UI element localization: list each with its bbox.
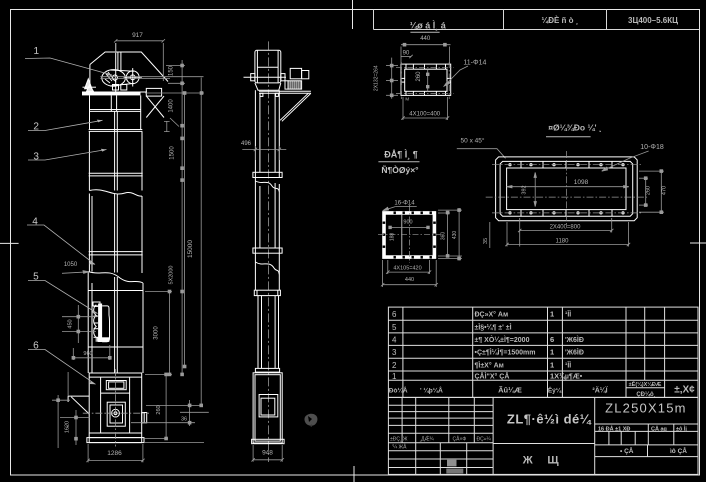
svg-text:ÇÅÌ"X° ÇÅ: ÇÅÌ"X° ÇÅ — [475, 372, 510, 381]
svg-text:¼ø á Ì¸ á: ¼ø á Ì¸ á — [410, 21, 447, 31]
svg-text:450: 450 — [68, 319, 74, 328]
svg-text:1050: 1050 — [64, 262, 78, 268]
svg-text:ìô ÇÅ: ìô ÇÅ — [669, 446, 687, 455]
svg-text:'Ж6ÌÐ: 'Ж6ÌÐ — [565, 335, 584, 344]
svg-text:1: 1 — [550, 310, 554, 319]
svg-text:496: 496 — [241, 141, 252, 147]
svg-text:' ¼þ¼Å: ' ¼þ¼Å — [420, 386, 443, 395]
svg-text:1500: 1500 — [170, 146, 176, 160]
svg-text:15000: 15000 — [187, 240, 194, 258]
svg-text:4: 4 — [392, 336, 397, 345]
svg-text:±,X¢: ±,X¢ — [674, 385, 695, 396]
svg-text:¼ÐÈ ñ ò ¸: ¼ÐÈ ñ ò ¸ — [542, 16, 579, 25]
svg-text:Ðò¼Å: Ðò¼Å — [389, 386, 408, 395]
svg-text:3Ц400–5.6КЦ: 3Ц400–5.6КЦ — [628, 16, 678, 25]
svg-text:960: 960 — [83, 351, 92, 357]
svg-text:4X105=420: 4X105=420 — [393, 265, 421, 271]
svg-text:Êý¼: Êý¼ — [548, 386, 562, 395]
svg-text:900: 900 — [403, 220, 412, 226]
svg-text:1400: 1400 — [169, 99, 175, 113]
svg-text:3: 3 — [33, 151, 39, 162]
svg-text:3000: 3000 — [154, 326, 160, 340]
svg-text:1620: 1620 — [65, 421, 71, 433]
svg-text:M: M — [405, 97, 409, 102]
svg-text:5: 5 — [392, 323, 397, 332]
svg-text:10-Φ18: 10-Φ18 — [640, 144, 664, 151]
svg-text:150: 150 — [169, 65, 175, 76]
svg-text:¸ДǼ¾: ¸ДǼ¾ — [420, 436, 435, 443]
svg-text:260: 260 — [646, 186, 652, 195]
svg-text:²Ä¼Ï: ²Ä¼Ï — [592, 387, 608, 395]
svg-text:948: 948 — [262, 450, 273, 457]
svg-text:ÐÇ»¼: ÐÇ»¼ — [477, 437, 492, 443]
svg-text:5: 5 — [33, 271, 39, 282]
svg-text:•Ç±¶Ì¼Ì¶=1500mm: •Ç±¶Ì¼Ì¶=1500mm — [475, 348, 536, 357]
svg-text:6: 6 — [33, 340, 39, 351]
svg-text:ÐÇ»X° Ам: ÐÇ»X° Ам — [475, 311, 509, 319]
svg-text:• ÇÅ: • ÇÅ — [620, 446, 634, 455]
svg-text:36: 36 — [181, 417, 187, 423]
svg-text:16 ÐÅ ±1 XÐ: 16 ÐÅ ±1 XÐ — [598, 426, 630, 433]
svg-text:917: 917 — [132, 32, 143, 39]
svg-text:¶Ì±X° Ам: ¶Ì±X° Ам — [475, 361, 504, 370]
svg-text:6: 6 — [392, 310, 397, 319]
svg-text:Ж: Ж — [522, 455, 533, 467]
svg-text:'Ж6ÌÐ: 'Ж6ÌÐ — [565, 348, 584, 357]
svg-text:90: 90 — [403, 51, 410, 57]
svg-text:470: 470 — [662, 186, 668, 195]
svg-text:5X2000: 5X2000 — [168, 266, 174, 285]
svg-text:Щ: Щ — [547, 455, 559, 467]
svg-text:360: 360 — [441, 232, 447, 241]
svg-text:4: 4 — [32, 216, 38, 227]
svg-text:Ñ¶ÒØý×°: Ñ¶ÒØý×° — [381, 164, 419, 175]
svg-text:1: 1 — [33, 46, 39, 57]
svg-text:1180: 1180 — [556, 238, 570, 244]
svg-text:260: 260 — [156, 405, 162, 414]
svg-text:1: 1 — [550, 348, 554, 357]
svg-text:ÇÅ×Ф: ÇÅ×Ф — [453, 436, 467, 443]
svg-text:188: 188 — [390, 233, 396, 242]
svg-text:6: 6 — [550, 335, 554, 344]
svg-text:2X132=264: 2X132=264 — [374, 65, 380, 91]
svg-text:±Ì§•¼¶ ±' ±Ì: ±Ì§•¼¶ ±' ±Ì — [475, 323, 512, 332]
svg-text:1286: 1286 — [107, 450, 122, 457]
svg-text:ÐÅ¶ Ì¸ ¶: ÐÅ¶ Ì¸ ¶ — [384, 149, 418, 159]
svg-text:¤Ø¼¾Ðo ¼' ¸: ¤Ø¼¾Ðo ¼' ¸ — [548, 123, 602, 133]
svg-text:2: 2 — [33, 121, 39, 132]
svg-text:Ãû¼Æ: Ãû¼Æ — [498, 386, 522, 395]
svg-text:ZL¶·ê½ì dé¼: ZL¶·ê½ì dé¼ — [507, 412, 592, 427]
svg-text:1: 1 — [550, 361, 554, 370]
svg-text:±¶ XÒ¼±Ì¶=2000: ±¶ XÒ¼±Ì¶=2000 — [475, 335, 530, 344]
svg-text:±ÐÇ¸|Ж: ±ÐÇ¸|Ж — [390, 437, 408, 443]
svg-text:35: 35 — [483, 238, 489, 244]
svg-text:±Ê(¼)X¼ÐÆ: ±Ê(¼)X¼ÐÆ — [629, 380, 662, 388]
svg-text:¾µ¶Æ•: ¾µ¶Æ• — [559, 373, 583, 381]
svg-text:260: 260 — [416, 71, 422, 82]
svg-text:ÇÅ ag: ÇÅ ag — [651, 426, 667, 433]
svg-text:440: 440 — [405, 277, 414, 283]
svg-text:±ô Ìj: ±ô Ìj — [676, 425, 687, 433]
svg-text:16-Φ14: 16-Φ14 — [394, 201, 415, 207]
svg-text:¹ÌÌ: ¹ÌÌ — [565, 361, 571, 370]
svg-text:'¼ ЖÅ: '¼ ЖÅ — [392, 444, 407, 451]
svg-text:1X: 1X — [550, 372, 559, 381]
svg-text:1098: 1098 — [574, 179, 589, 186]
svg-text:4X100=400: 4X100=400 — [409, 112, 441, 118]
svg-text:2X400=800: 2X400=800 — [550, 224, 582, 230]
svg-text:430: 430 — [452, 231, 458, 240]
svg-text:392: 392 — [522, 185, 528, 194]
svg-text:11-Φ14: 11-Φ14 — [463, 60, 486, 67]
svg-text:2: 2 — [392, 361, 397, 370]
svg-text:440: 440 — [420, 36, 431, 42]
svg-text:50 x 45°: 50 x 45° — [461, 136, 485, 144]
svg-text:¹ÌÌ: ¹ÌÌ — [565, 310, 571, 319]
svg-text:3: 3 — [392, 348, 397, 357]
svg-text:1: 1 — [392, 372, 397, 381]
svg-text:ZL250X15m: ZL250X15m — [605, 401, 687, 416]
